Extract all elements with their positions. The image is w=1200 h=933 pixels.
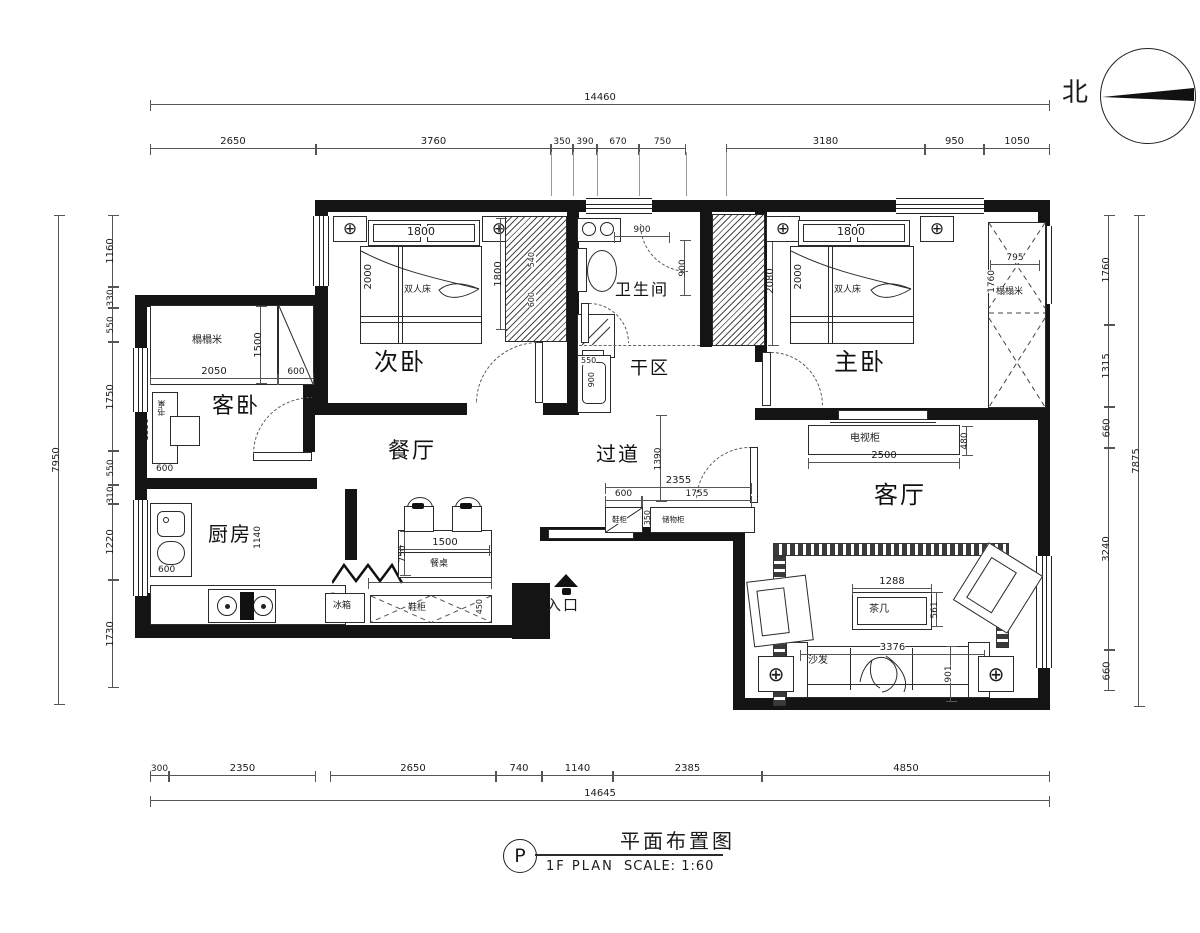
hallway-cabinet-1-label: 鞋柜	[612, 516, 627, 524]
wall	[315, 403, 467, 415]
desk-label: 书桌	[158, 400, 166, 416]
desk-chair	[170, 416, 200, 446]
burner-icon	[253, 596, 273, 616]
tv-cabinet-depth-dim: 480	[966, 426, 967, 456]
entrance-arrow-icon	[554, 574, 578, 587]
dim-right-seg: 660	[1108, 650, 1109, 691]
dining-table-width-dim: 1500	[400, 549, 490, 550]
sink-depth-dim: 900	[588, 372, 596, 387]
hallway-cabinet-total-dim: 2355	[605, 487, 752, 488]
witness-line	[726, 152, 727, 196]
dim-top-seg: 950	[925, 148, 984, 149]
detail-bubble-letter: P	[514, 845, 525, 867]
room-label-living: 客厅	[874, 483, 926, 507]
dim-bottom-seg: 300	[150, 775, 169, 776]
bed-blanket-icon	[791, 247, 913, 343]
floor-plan: 北 14460 2650 3760 350 390 670 750 3180 9…	[0, 0, 1200, 933]
door-arc	[253, 397, 312, 454]
washer-knob-icon	[600, 222, 614, 236]
plan-id: 1F PLAN	[546, 860, 614, 873]
north-label: 北	[1062, 80, 1088, 106]
dining-chair	[404, 506, 434, 532]
dining-table-label: 餐桌	[430, 560, 448, 569]
wall	[135, 625, 527, 638]
north-needle-icon	[1100, 48, 1196, 142]
dim-top-seg: 1050	[984, 148, 1050, 149]
closet-x-pattern-icon	[988, 222, 1046, 408]
door-arc	[589, 303, 629, 343]
hallway-cabinet-seg-dim: 600	[605, 500, 642, 501]
dim-bottom-seg: 4850	[762, 775, 1050, 776]
dim-bottom-seg: 2385	[613, 775, 762, 776]
dim-right-seg: 660	[1108, 407, 1109, 448]
bed-length-dim: 2000	[794, 264, 804, 289]
dim-left-overall: 7950	[58, 215, 59, 705]
tv	[838, 410, 928, 420]
wardrobe-dim: 600	[528, 292, 536, 307]
room-label-dry-area: 干区	[630, 360, 670, 378]
dim-left-seg: 1750	[112, 342, 113, 451]
desk-width-dim: 600	[156, 465, 173, 474]
bed-width-dim: 1800	[835, 226, 867, 237]
hall-wardrobe	[712, 214, 765, 346]
dining-table-line	[398, 552, 492, 553]
dining-table-depth-dim: 750	[404, 531, 405, 576]
dining-chair	[452, 506, 482, 532]
kitchen-sink-basin	[157, 541, 185, 565]
guest-tatami-label: 榻榻米	[192, 336, 222, 346]
door-leaf	[750, 447, 758, 503]
dim-right-seg: 3240	[1108, 448, 1109, 650]
bed-length-dim: 2000	[364, 264, 374, 289]
wardrobe-dim: 540	[528, 252, 536, 267]
door-leaf	[581, 303, 589, 343]
column-marker: ⊕	[758, 656, 794, 692]
entrance-arrow-base	[562, 588, 571, 595]
cabinet-x-pattern-icon	[370, 595, 492, 623]
tv-cabinet-label: 电视柜	[850, 434, 880, 444]
dim-bottom-seg: 2350	[169, 775, 316, 776]
toilet-bowl	[587, 250, 617, 292]
column-marker: ⊕	[920, 216, 954, 242]
window	[313, 216, 329, 286]
dim-bottom-seg: 740	[496, 775, 542, 776]
dim-left-seg: 550	[112, 451, 113, 485]
coffee-table-width-dim: 1288	[852, 588, 932, 589]
sofa-width-dim: 3376	[800, 654, 985, 655]
window	[133, 348, 148, 412]
window	[586, 198, 652, 214]
dim-left-seg: 1730	[112, 580, 113, 688]
hallway-width-dim: 1390	[660, 415, 661, 502]
sofa-depth-dim: 901	[950, 646, 951, 702]
cabinet-run-dim: 2000	[368, 582, 492, 583]
room-label-secondary-bedroom: 次卧	[374, 350, 426, 374]
dim-top-seg: 3180	[726, 148, 925, 149]
wall	[700, 212, 712, 347]
washer-knob-icon	[582, 222, 596, 236]
sofa-label: 沙发	[808, 656, 828, 666]
dim-right-seg: 1760	[1108, 215, 1109, 325]
plan-scale: SCALE: 1:60	[624, 860, 714, 873]
dim-right-overall: 7875	[1138, 215, 1139, 707]
column-marker: ⊕	[978, 656, 1014, 692]
column-marker: ⊕	[766, 216, 800, 242]
tatami-label: 榻榻米	[996, 288, 1023, 297]
window	[896, 198, 984, 214]
tv-stand-line	[830, 422, 936, 423]
room-label-bathroom: 卫生间	[615, 282, 669, 298]
coffee-table-inner	[857, 597, 927, 625]
kitchen-sink-basin	[157, 511, 185, 537]
witness-line	[551, 152, 552, 196]
detail-bubble: P	[503, 839, 537, 873]
dim-left-seg: 550	[112, 308, 113, 342]
door-arc	[771, 352, 823, 406]
entrance-label: 入口	[546, 598, 580, 613]
sink-width-dim: 550	[581, 357, 596, 365]
tatami-width-dim: 795	[990, 264, 1040, 265]
shoe-cabinet-depth-dim: 450	[476, 599, 484, 614]
dim-top-overall: 14460	[150, 104, 1050, 105]
desk-length-dim: 1350	[142, 418, 151, 441]
guest-tatami-width-dim: 2050	[150, 378, 278, 379]
fridge-label: 冰箱	[333, 602, 351, 611]
sofa-blanket-icon	[852, 648, 936, 698]
dim-left-seg: 1160	[112, 215, 113, 287]
rug-border	[773, 543, 1009, 556]
bed-label: 双人床	[404, 286, 431, 295]
dim-top-seg: 3760	[316, 148, 551, 149]
dim-bottom-seg: 2650	[330, 775, 496, 776]
shoe-cabinet-label: 鞋柜	[408, 604, 426, 613]
coffee-table-depth-dim: 561	[936, 592, 937, 627]
bed-width-dim: 1800	[405, 226, 437, 237]
titleblock: P 平面布置图 1F PLAN SCALE: 1:60	[500, 825, 760, 875]
wall	[543, 403, 579, 415]
wall	[733, 527, 745, 710]
shower-door-arc	[640, 224, 688, 272]
room-label-master-bedroom: 主卧	[834, 350, 886, 374]
bed-blanket-icon	[361, 247, 481, 343]
room-label-kitchen: 厨房	[208, 524, 252, 544]
witness-line	[686, 152, 687, 196]
hallway-cabinet-seg-dim: 1755	[642, 500, 752, 501]
kitchen-sink-dim: 600	[158, 566, 175, 575]
window	[133, 500, 148, 596]
tv-cabinet-width-dim: 2500	[808, 462, 960, 463]
dim-top-seg: 390	[573, 148, 597, 149]
guest-tatami-depth-dim: 1500	[260, 306, 261, 384]
door-arc	[476, 342, 539, 403]
room-label-guest-bedroom: 客卧	[212, 396, 260, 418]
armchair-cushion	[966, 557, 1017, 614]
dim-top-seg: 750	[639, 148, 686, 149]
door-leaf	[762, 352, 771, 406]
room-label-dining: 餐厅	[388, 441, 436, 463]
stove-center	[240, 592, 254, 620]
armchair	[746, 575, 814, 648]
plan-title: 平面布置图	[620, 831, 735, 851]
hallway-cabinet-2-label: 储物柜	[662, 516, 685, 524]
dim-top-seg: 670	[597, 148, 639, 149]
compass	[1100, 48, 1194, 142]
dim-left-seg: 1220	[112, 504, 113, 580]
witness-line	[597, 152, 598, 196]
bed-label: 双人床	[834, 286, 861, 295]
wall	[147, 478, 317, 489]
guest-wardrobe-width-dim: 600	[278, 378, 314, 379]
dim-bottom-overall: 14645	[150, 800, 1050, 801]
dim-right-seg: 1315	[1108, 325, 1109, 407]
coffee-table-label: 茶几	[869, 605, 889, 615]
armchair-cushion	[756, 587, 789, 636]
dim-bottom-seg: 1140	[542, 775, 613, 776]
kitchen-aisle-dim: 1140	[254, 526, 263, 549]
witness-line	[639, 152, 640, 196]
wardrobe-height-dim: 1800	[500, 218, 501, 330]
wardrobe	[505, 216, 567, 342]
burner-icon	[217, 596, 237, 616]
faucet-icon	[163, 517, 169, 523]
titleblock-line	[535, 854, 723, 856]
dim-top-seg: 2650	[150, 148, 316, 149]
shower-partition	[579, 345, 700, 346]
chair-cushion	[460, 503, 472, 509]
toilet-tank	[577, 248, 587, 292]
room-label-hallway: 过道	[596, 444, 640, 464]
wall	[345, 489, 357, 560]
dim-left-seg: 310	[112, 485, 113, 504]
column-marker: ⊕	[333, 216, 367, 242]
dim-top-seg: 350	[551, 148, 573, 149]
dim-left-seg: 330	[112, 287, 113, 308]
witness-line	[573, 152, 574, 196]
chair-cushion	[412, 503, 424, 509]
